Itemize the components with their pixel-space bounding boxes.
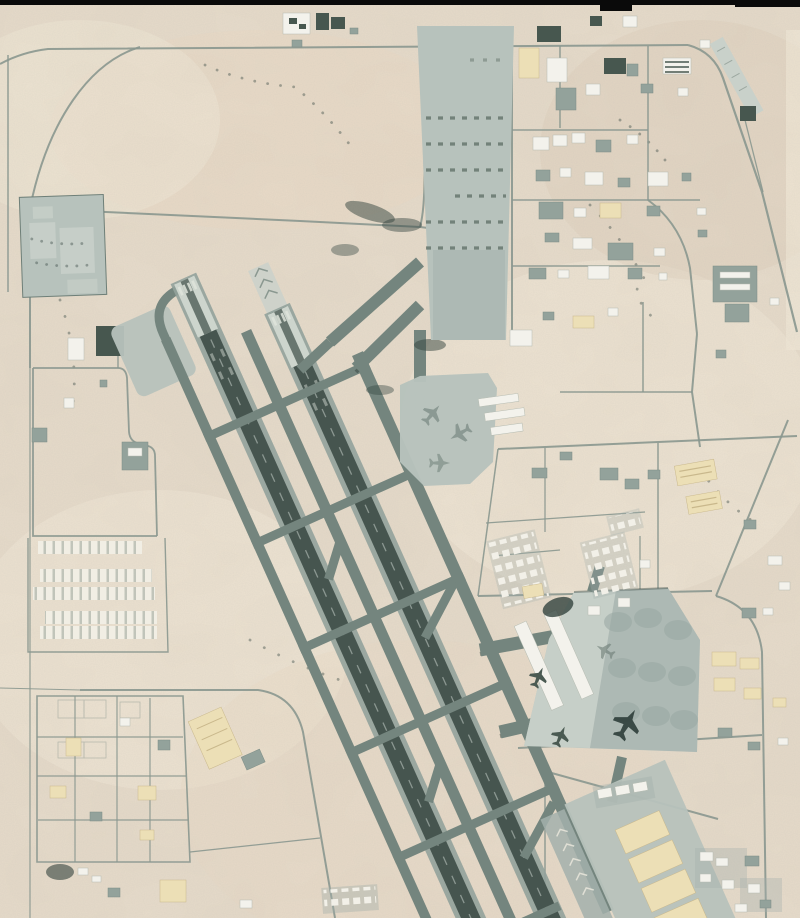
building <box>654 248 665 256</box>
building <box>586 84 600 95</box>
building <box>240 900 252 908</box>
building <box>682 173 691 181</box>
building <box>768 556 782 565</box>
airbase-satellite-svg: Aerial satellite view of a desert airbas… <box>0 0 800 918</box>
building <box>716 858 728 866</box>
building <box>600 468 618 480</box>
building <box>770 298 779 305</box>
building <box>744 688 761 699</box>
building <box>574 208 586 217</box>
mid-field-apron <box>400 373 497 486</box>
building <box>78 868 88 875</box>
building <box>537 26 561 42</box>
building <box>545 233 559 242</box>
building <box>138 786 156 800</box>
building <box>641 84 653 93</box>
building <box>558 270 569 278</box>
building <box>716 350 726 358</box>
building <box>748 884 760 893</box>
building <box>600 203 621 218</box>
building <box>745 856 759 866</box>
building <box>529 268 546 279</box>
building <box>700 874 711 882</box>
building <box>698 230 707 237</box>
building <box>623 16 637 27</box>
building <box>553 135 567 146</box>
building <box>648 470 660 479</box>
building <box>90 812 102 821</box>
building <box>140 830 154 840</box>
building <box>763 608 773 615</box>
building <box>618 598 630 607</box>
building <box>678 88 688 96</box>
building <box>547 58 567 82</box>
building <box>740 658 759 669</box>
building <box>627 64 638 76</box>
building <box>778 738 788 745</box>
building <box>700 40 710 48</box>
building <box>292 40 302 47</box>
building <box>585 172 603 185</box>
building <box>779 582 790 590</box>
building <box>120 718 130 726</box>
building <box>744 520 756 529</box>
building <box>618 178 630 187</box>
building <box>560 168 571 177</box>
building <box>32 428 47 442</box>
building <box>648 172 668 186</box>
building <box>608 243 633 260</box>
building <box>92 876 101 882</box>
building <box>50 786 66 798</box>
satellite-image: Aerial satellite view of a desert airbas… <box>0 0 800 918</box>
building <box>532 468 547 478</box>
building <box>588 606 600 615</box>
building <box>718 728 732 737</box>
building <box>608 308 618 316</box>
building <box>722 880 734 889</box>
building <box>572 133 585 143</box>
building <box>573 316 594 328</box>
shelter-canopies <box>604 608 698 730</box>
building <box>536 170 550 181</box>
building <box>556 88 576 110</box>
building <box>640 560 650 568</box>
building <box>68 338 84 360</box>
building <box>760 900 771 908</box>
building <box>573 238 592 249</box>
building <box>740 106 756 121</box>
building <box>742 608 756 618</box>
building <box>590 16 602 26</box>
building <box>316 13 329 30</box>
north-cargo-apron <box>417 26 514 340</box>
building <box>64 398 74 408</box>
building <box>714 678 735 691</box>
building <box>100 380 107 387</box>
building <box>748 742 760 750</box>
building <box>128 448 142 456</box>
building <box>596 140 611 152</box>
building <box>510 330 532 346</box>
building <box>735 904 747 912</box>
building <box>519 48 539 78</box>
building <box>647 206 660 216</box>
building <box>773 698 786 707</box>
building <box>108 888 120 897</box>
building <box>604 58 626 74</box>
building <box>533 137 549 150</box>
building <box>697 208 706 215</box>
building <box>160 880 186 902</box>
building <box>627 135 638 144</box>
building <box>700 852 713 861</box>
building <box>66 738 81 756</box>
building <box>350 28 358 34</box>
building <box>331 17 345 29</box>
building <box>659 273 667 280</box>
building <box>560 452 572 460</box>
building <box>712 652 736 666</box>
building <box>625 479 639 489</box>
building <box>543 312 554 320</box>
northwest-compound-pad <box>19 194 106 297</box>
building <box>158 740 170 750</box>
building <box>588 266 609 279</box>
building <box>539 202 563 219</box>
building <box>628 268 642 279</box>
